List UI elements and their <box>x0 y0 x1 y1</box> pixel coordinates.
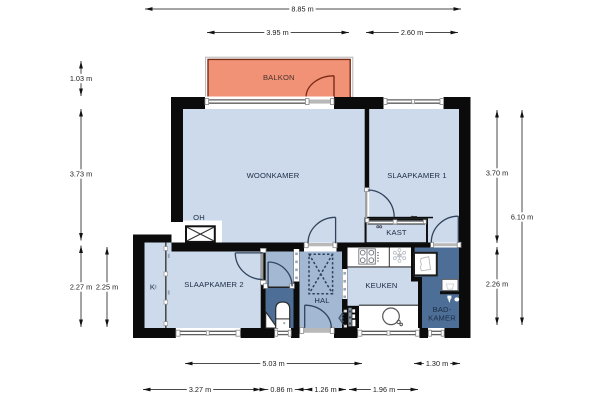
svg-text:KEUKEN: KEUKEN <box>365 281 397 290</box>
svg-text:HAL: HAL <box>314 296 329 305</box>
svg-text:WOONKAMER: WOONKAMER <box>247 171 300 180</box>
svg-text:1.03 m: 1.03 m <box>70 74 92 83</box>
svg-text:SLAAPKAMER 1: SLAAPKAMER 1 <box>387 171 447 180</box>
svg-text:3.70 m: 3.70 m <box>486 169 508 178</box>
svg-text:KAMER: KAMER <box>428 313 456 322</box>
svg-text:BALKON: BALKON <box>263 73 295 82</box>
svg-text:1.30 m: 1.30 m <box>426 359 448 368</box>
svg-text:0.86 m: 0.86 m <box>270 385 292 394</box>
svg-text:2.25 m: 2.25 m <box>96 283 118 292</box>
svg-text:6.10 m: 6.10 m <box>511 213 533 222</box>
svg-text:OH: OH <box>193 213 205 222</box>
svg-text:3.27 m: 3.27 m <box>189 385 211 394</box>
svg-text:1.26 m: 1.26 m <box>314 385 336 394</box>
svg-text:5.03 m: 5.03 m <box>262 359 284 368</box>
svg-text:K: K <box>150 283 155 292</box>
svg-text:1.96 m: 1.96 m <box>373 385 395 394</box>
svg-text:8.85 m: 8.85 m <box>291 5 313 14</box>
svg-text:KAST: KAST <box>386 228 407 237</box>
svg-text:2.27 m: 2.27 m <box>70 283 92 292</box>
svg-text:2.26 m: 2.26 m <box>486 280 508 289</box>
svg-text:3.95 m: 3.95 m <box>266 28 288 37</box>
svg-text:2.60 m: 2.60 m <box>401 28 423 37</box>
svg-text:SLAAPKAMER 2: SLAAPKAMER 2 <box>184 280 244 289</box>
svg-text:3.73 m: 3.73 m <box>70 170 92 179</box>
